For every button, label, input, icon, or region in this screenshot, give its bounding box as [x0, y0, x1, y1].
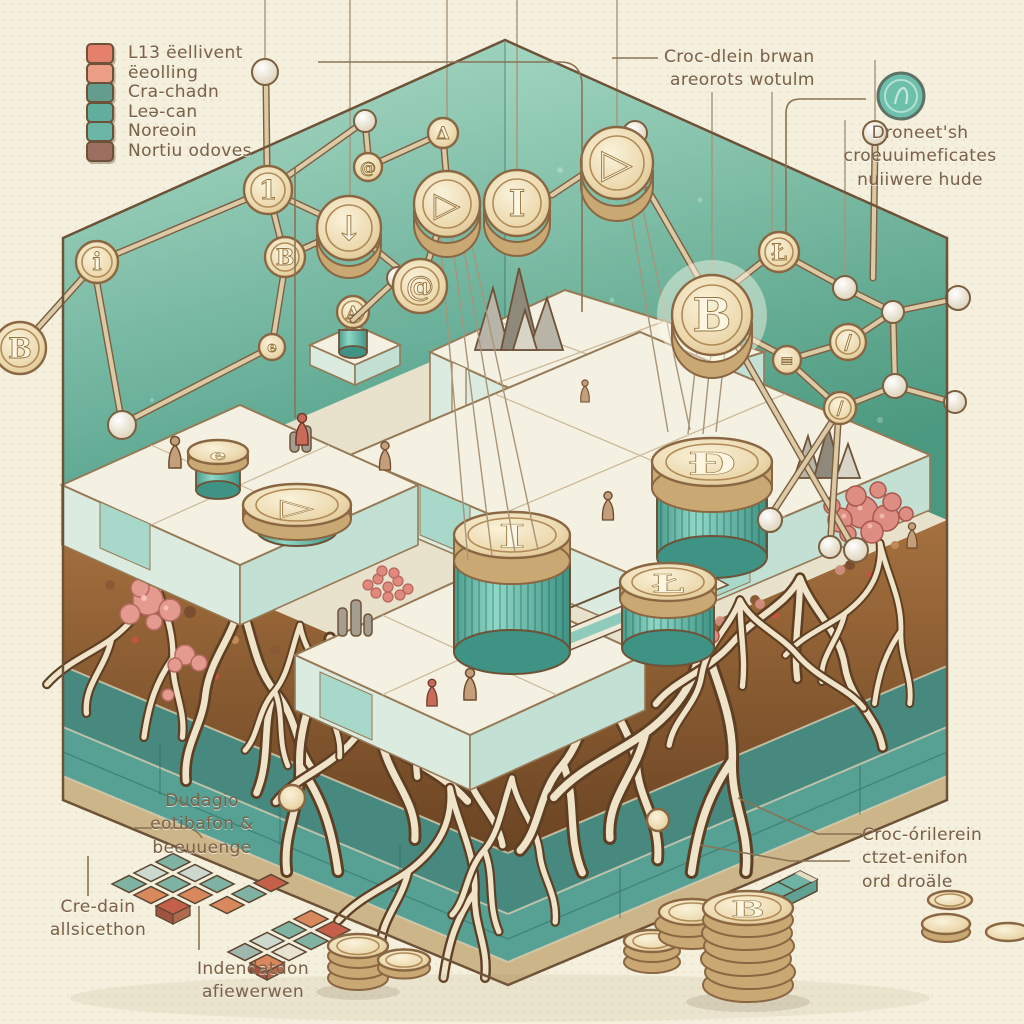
coin-glyph-e: e: [267, 338, 277, 356]
legend-chip: [86, 63, 114, 84]
coin-glyph-play: ▷: [434, 185, 461, 225]
coin-glyph-bitcoin: B: [693, 288, 732, 342]
coin-glyph-at: @: [406, 270, 434, 303]
coin-glyph-bitcoin: B: [276, 245, 295, 271]
legend-item: Nortiu odoves: [86, 142, 252, 162]
coin-glyph-e: e: [210, 446, 227, 463]
thick-coin-iota: I: [484, 170, 550, 256]
thick-coin-bitcoin: B: [672, 275, 752, 378]
annotation-bottom-right: Croc-órilerein ctzet-enifon ord droäle: [862, 824, 1022, 894]
annotation-bottom-left-tertiary: Indendatdon afiewerwen: [128, 958, 378, 1005]
legend-chip: [86, 141, 114, 162]
annotation-top-right-network: Croc-dlein brwan areorots wotulm: [664, 46, 815, 93]
litecoin-column: Ł: [620, 563, 716, 666]
play-coin-flat: ▷: [243, 484, 351, 546]
coin-glyph-litecoin: Ł: [771, 240, 787, 266]
legend: L13 ëellivent ëeolling Cra-chadn Leə-can…: [86, 44, 252, 161]
coin-glyph-at: @: [360, 158, 376, 177]
coin-glyph-slash: /: [844, 330, 852, 354]
bitcoin-stack: B: [701, 891, 795, 1002]
legend-chip: [86, 82, 114, 103]
annotation-bottom-left-primary: Dudagio eotibafon & beeuuenge: [92, 790, 312, 860]
legend-chip: [86, 43, 114, 64]
annotation-token: Droneet'sh croeuuimeficates nuiiwere hud…: [840, 122, 1000, 192]
illustration-canvas: { "palette": { "background": "#f4f0dd", …: [0, 0, 1024, 1024]
root-knot-coin: [647, 809, 669, 831]
legend-chip: [86, 102, 114, 123]
thick-coin-triangle: ▷: [581, 127, 653, 221]
coin-glyph-litecoin: Ł: [652, 569, 685, 599]
thick-coin-play: ▷: [414, 171, 480, 257]
coin-glyph-play: ▷: [602, 140, 633, 187]
token-icon: [878, 73, 924, 119]
coin-glyph-play: ▷: [280, 494, 315, 522]
coin-glyph-delta: Δ: [436, 124, 449, 144]
annotation-bottom-left-secondary: Cre-dain allsicethon: [18, 896, 178, 943]
coin-glyph-bitcoin: B: [731, 897, 765, 923]
coin-glyph-info: i: [92, 247, 101, 276]
dogecoin-column: Đ: [652, 438, 772, 578]
thick-coin-down: ↓: [317, 196, 381, 278]
legend-chip: [86, 121, 114, 142]
coin-glyph-iota: I: [509, 183, 526, 225]
coin-glyph-down: ↓: [335, 209, 364, 249]
coin-glyph-hash: ≡: [780, 351, 793, 370]
coin-glyph-dogecoin: Đ: [688, 446, 737, 482]
coin-glyph-one: 1: [259, 176, 277, 206]
legend-label: Nortiu odoves: [128, 140, 252, 163]
coin-glyph-slash: /: [837, 398, 844, 419]
coin-glyph-bitcoin: B: [8, 332, 32, 365]
e-coin-small: e: [188, 440, 248, 499]
